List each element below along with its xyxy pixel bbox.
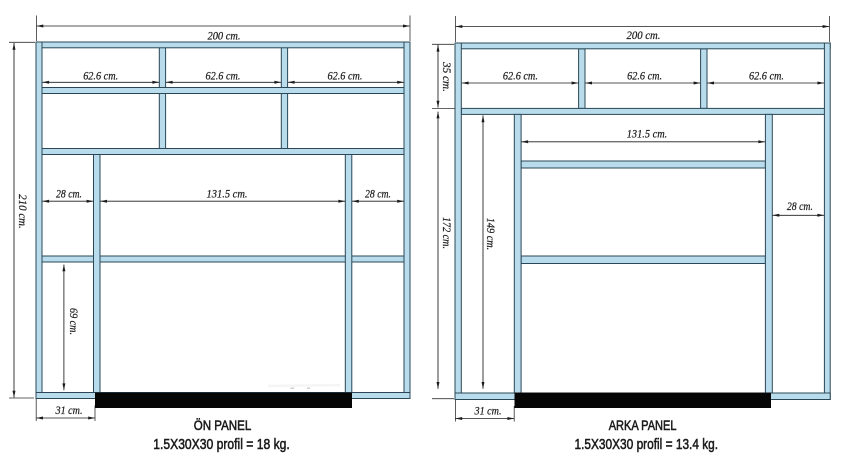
svg-text:31 cm.: 31 cm. [55, 403, 83, 417]
svg-text:28 cm.: 28 cm. [787, 199, 813, 213]
svg-text:28 cm.: 28 cm. [365, 186, 391, 200]
svg-text:69 cm.: 69 cm. [67, 308, 81, 335]
svg-text:62.6 cm.: 62.6 cm. [206, 68, 241, 82]
svg-text:62.6 cm.: 62.6 cm. [328, 68, 363, 82]
svg-text:200 cm.: 200 cm. [208, 28, 241, 42]
svg-text:62.6 cm.: 62.6 cm. [627, 69, 662, 83]
svg-text:210 cm.: 210 cm. [16, 194, 30, 229]
svg-text:62.6 cm.: 62.6 cm. [749, 69, 784, 83]
svg-text:62.6 cm.: 62.6 cm. [503, 69, 538, 83]
svg-text:200 cm.: 200 cm. [627, 28, 661, 42]
svg-text:ÖN PANEL: ÖN PANEL [194, 418, 252, 433]
svg-text:149 cm.: 149 cm. [484, 218, 498, 251]
svg-text:28 cm.: 28 cm. [56, 186, 82, 200]
svg-text:31 cm.: 31 cm. [474, 403, 502, 417]
svg-text:62.6 cm.: 62.6 cm. [83, 68, 118, 82]
svg-text:131.5 cm.: 131.5 cm. [207, 186, 248, 200]
svg-text:131.5 cm.: 131.5 cm. [627, 126, 668, 140]
svg-text:1.5X30X30 profil = 18 kg.: 1.5X30X30 profil = 18 kg. [153, 436, 290, 453]
svg-text:1.5X30X30 profil = 13.4 kg.: 1.5X30X30 profil = 13.4 kg. [575, 436, 719, 453]
svg-text:172 cm.: 172 cm. [440, 217, 454, 249]
svg-text:ARKA PANEL: ARKA PANEL [609, 418, 677, 433]
svg-text:35 cm.: 35 cm. [440, 61, 454, 92]
